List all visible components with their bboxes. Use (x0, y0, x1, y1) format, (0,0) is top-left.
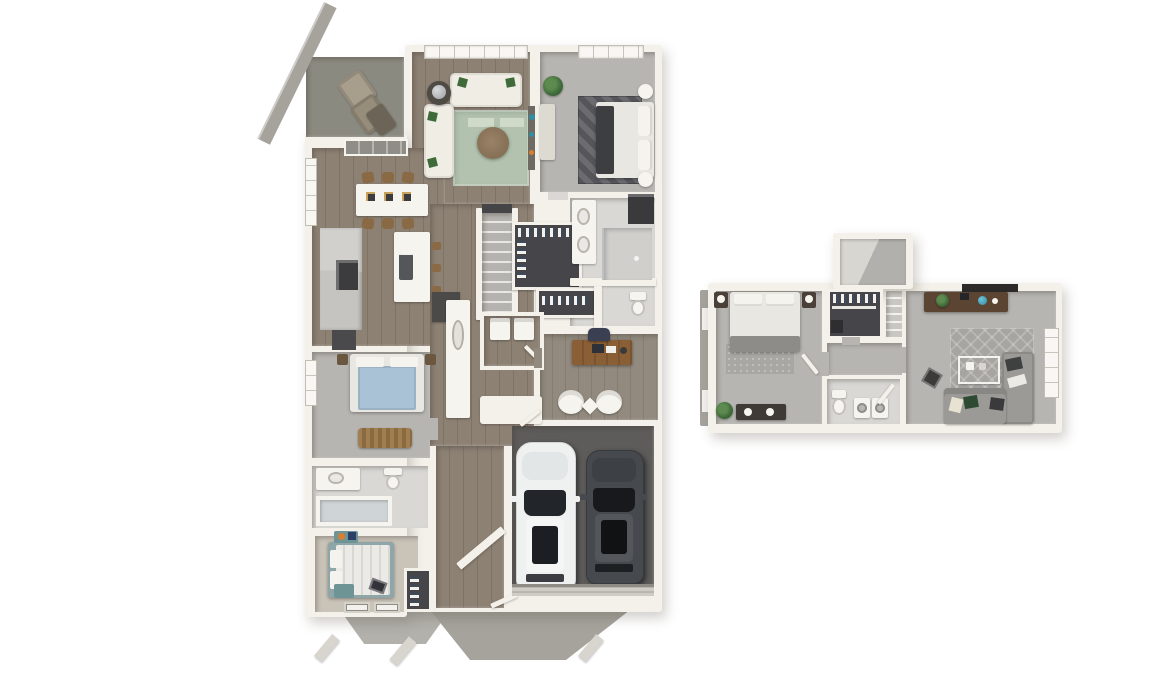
bed-pillow (766, 294, 794, 306)
charcoal-pillow (989, 397, 1005, 411)
washer-door (857, 403, 867, 413)
bed-pillow (390, 357, 418, 367)
shower-drain (634, 256, 639, 261)
nook-armchair (514, 318, 534, 340)
toilet-tank (630, 292, 646, 300)
dining-chair (401, 171, 414, 184)
table-lamp (717, 295, 725, 303)
wall-shelf (962, 284, 1018, 292)
wireframe-coffee-table (958, 356, 1000, 384)
toilet-bowl (386, 475, 400, 490)
console-cup (992, 298, 998, 304)
suv-windshield (524, 490, 566, 516)
staircase (482, 213, 512, 318)
dining-chair (401, 217, 414, 229)
bed-foot-band (730, 336, 800, 352)
table-decor (979, 363, 986, 370)
nook-armchair (490, 318, 510, 340)
toilet-tank (384, 468, 402, 475)
teal-decor (529, 114, 535, 120)
barrel-chair (596, 390, 622, 414)
laptop (592, 344, 604, 353)
nightstand (425, 354, 436, 365)
toilet-tank (832, 390, 846, 398)
closet-storage-box (831, 320, 843, 333)
desk-decor (620, 347, 627, 354)
bed-pillow (734, 294, 762, 306)
shower-glass (602, 228, 604, 280)
wicker-bench (358, 428, 412, 448)
bed-pillow (330, 550, 342, 568)
tub-shower (316, 496, 392, 526)
cabinet-oval-detail (452, 320, 464, 350)
potted-plant (543, 76, 563, 96)
suv-mirror (572, 496, 580, 502)
sedan-sunroof (601, 520, 627, 554)
closet-clothes-row (833, 294, 877, 303)
notepad (606, 346, 616, 353)
round-pouf (638, 172, 653, 187)
vanity-sink (577, 208, 590, 225)
table-lamp (805, 295, 813, 303)
bath-wall (594, 286, 602, 328)
desk-chair (588, 328, 610, 341)
cooktop (336, 260, 358, 290)
bed-pillow (638, 140, 652, 170)
orange-decor (529, 150, 534, 155)
potted-plant (716, 402, 733, 419)
bedroom3-window (344, 602, 370, 613)
dining-chair (382, 172, 394, 183)
entry-hall-floor (436, 446, 504, 608)
sedan-mirror (640, 494, 647, 500)
closet-clothes-row (542, 296, 588, 305)
sedan-mirror (580, 494, 587, 500)
closet-clothes-row (518, 228, 570, 237)
dresser-decor (744, 408, 752, 416)
entry-wall-mass (480, 396, 542, 424)
orange-decor (338, 533, 345, 540)
nightstand (337, 354, 348, 365)
teal-nightstand (334, 584, 354, 598)
dining-chair (361, 171, 374, 184)
bedroom2-window (305, 360, 317, 406)
toilet-bowl (631, 300, 645, 316)
bar-stool (432, 264, 441, 272)
navy-box (348, 532, 356, 540)
bedroom2-doorway (428, 418, 438, 440)
globe-decor (978, 296, 987, 305)
bar-stool (432, 242, 441, 250)
bath2-sink (328, 472, 344, 484)
sedan-rear-glass (595, 564, 633, 572)
stairwell-void (840, 239, 906, 285)
sedan-windshield (593, 488, 635, 512)
suv-hood (522, 452, 568, 480)
bed-pillow (356, 357, 384, 367)
bed-runner (596, 106, 614, 174)
suv-rear-glass (526, 574, 564, 582)
living-room-windows (424, 45, 528, 59)
place-setting (402, 192, 411, 201)
bed-pillow (638, 106, 652, 136)
refrigerator (332, 330, 356, 350)
blue-duvet (358, 366, 416, 410)
vanity-sink (577, 236, 590, 253)
round-pouf (638, 84, 653, 99)
teal-decor (529, 132, 534, 137)
dining-chair (382, 218, 394, 229)
upper-hallway-floor (827, 343, 902, 375)
suv-sunroof (532, 526, 558, 564)
coffee-table (477, 127, 509, 159)
stair-landing (482, 204, 512, 213)
rug-runner (500, 118, 524, 127)
island-sink (399, 254, 413, 280)
closet-doorway (842, 337, 860, 345)
green-pillow (427, 111, 438, 122)
dresser (540, 104, 555, 160)
office-doorway (534, 348, 542, 368)
console-lamp (960, 293, 969, 300)
porch-step (314, 634, 340, 662)
place-setting (366, 192, 375, 201)
closet-clothes-row (410, 574, 419, 606)
green-pillow (963, 395, 979, 409)
rug-runner (468, 118, 494, 127)
sedan-hood (592, 458, 636, 482)
bath-doorway (548, 192, 568, 200)
dining-window (305, 158, 317, 226)
walk-in-shower (604, 228, 652, 280)
barrel-chair (558, 390, 584, 414)
primary-bedroom-window (578, 45, 644, 59)
entry-walkway (430, 610, 630, 660)
closet-clothes-row (517, 238, 526, 278)
toilet-bowl (832, 398, 846, 415)
closet-shelf (832, 306, 876, 309)
place-setting (384, 192, 393, 201)
green-pillow (505, 77, 515, 87)
upper-staircase (886, 291, 902, 337)
table-decor (966, 362, 974, 370)
dresser-decor (766, 408, 774, 416)
bedroom3-window (374, 602, 400, 613)
bonus-room-window (1044, 328, 1059, 398)
suv-mirror (510, 496, 518, 502)
sliding-patio-door (344, 139, 408, 156)
console-plant (936, 294, 949, 307)
utility-cabinet (446, 300, 470, 418)
garage-door (512, 587, 654, 596)
linen-nook (628, 194, 654, 224)
bedroom-doorway (820, 352, 829, 376)
dining-chair (361, 217, 374, 229)
floor-plan-canvas (0, 0, 1152, 674)
globe-decor (432, 85, 446, 99)
